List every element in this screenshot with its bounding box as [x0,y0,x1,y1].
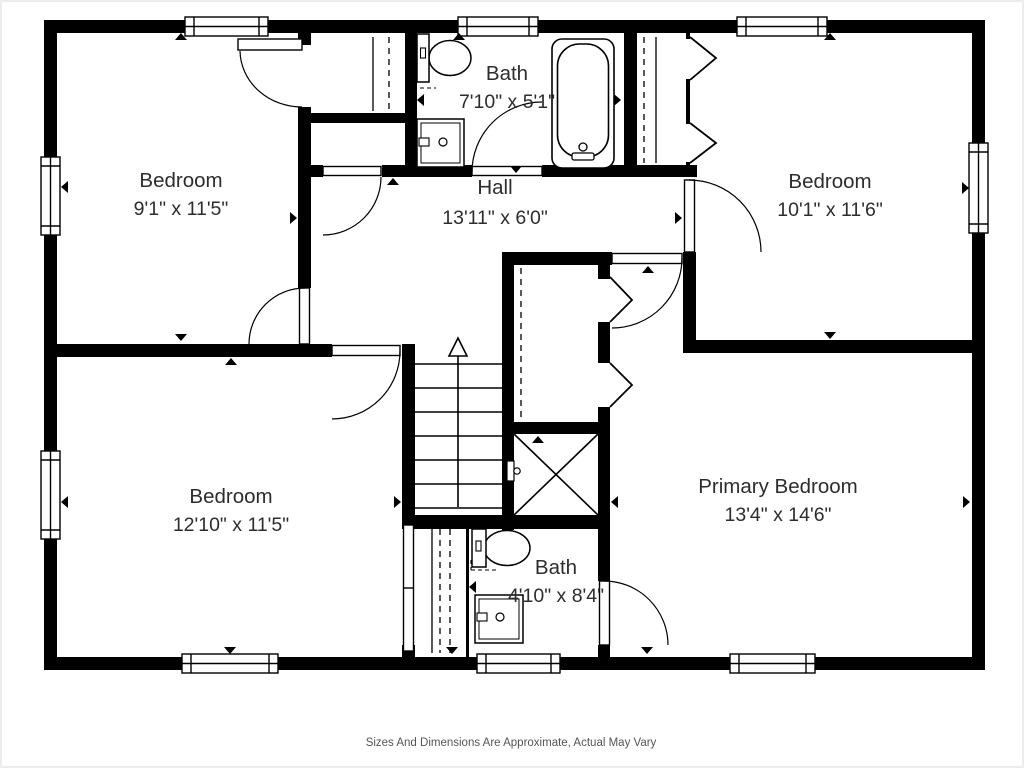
window-icon [737,17,827,36]
door-icon [685,180,762,252]
toilet-icon [413,34,471,88]
stairs-icon [415,338,502,508]
sliding-door-icon [404,525,414,651]
room-label: Bath [486,62,528,85]
floor-plan-canvas: Bedroom 9'1" x 11'5" Bath 7'10" x 5'1" H… [0,0,1024,768]
window-icon [969,143,988,233]
floor-plan-page: Bedroom 9'1" x 11'5" Bath 7'10" x 5'1" H… [0,0,1024,768]
door-icon [249,288,310,344]
room-dimensions: 12'10" x 11'5" [173,514,289,536]
window-icon [730,654,815,673]
bifold-door-icon [610,277,632,322]
shower-icon [507,434,598,515]
window-icon [182,654,278,673]
room-dimensions: 13'4" x 14'6" [725,504,832,526]
bifold-door-icon [690,37,716,80]
bifold-door-icon [690,123,716,163]
window-icon [477,654,560,673]
closet-bath-thin-wall [466,529,469,657]
room-label: Hall [477,176,512,199]
window-icon [41,157,60,235]
room-label: Bath [535,556,577,579]
door-icon [472,102,542,176]
room-dimensions: 10'1" x 11'6" [777,199,883,221]
door-icon [238,39,302,107]
door-icon [332,346,400,420]
room-dimensions: 13'11" x 6'0" [442,207,548,229]
room-dimensions: 9'1" x 11'5" [134,198,229,220]
door-icon [323,167,381,236]
toilet-icon [471,529,530,570]
sink-icon [417,119,464,167]
room-label: Bedroom [189,485,272,508]
bathtub-icon [552,39,614,168]
door-icon [600,581,669,645]
window-icon [185,17,268,36]
walls [44,20,985,670]
room-label: Bedroom [139,169,222,192]
bifold-door-icon [610,363,632,407]
room-label: Bedroom [788,170,871,193]
room-dimensions: 4'10" x 8'4" [508,585,604,607]
disclaimer-text: Sizes And Dimensions Are Approximate, Ac… [366,737,657,749]
room-label: Primary Bedroom [698,475,858,498]
room-dimensions: 7'10" x 5'1" [459,91,555,113]
stairs-up-arrow-icon [449,338,467,356]
window-icon [41,451,60,539]
window-icon [458,17,538,36]
